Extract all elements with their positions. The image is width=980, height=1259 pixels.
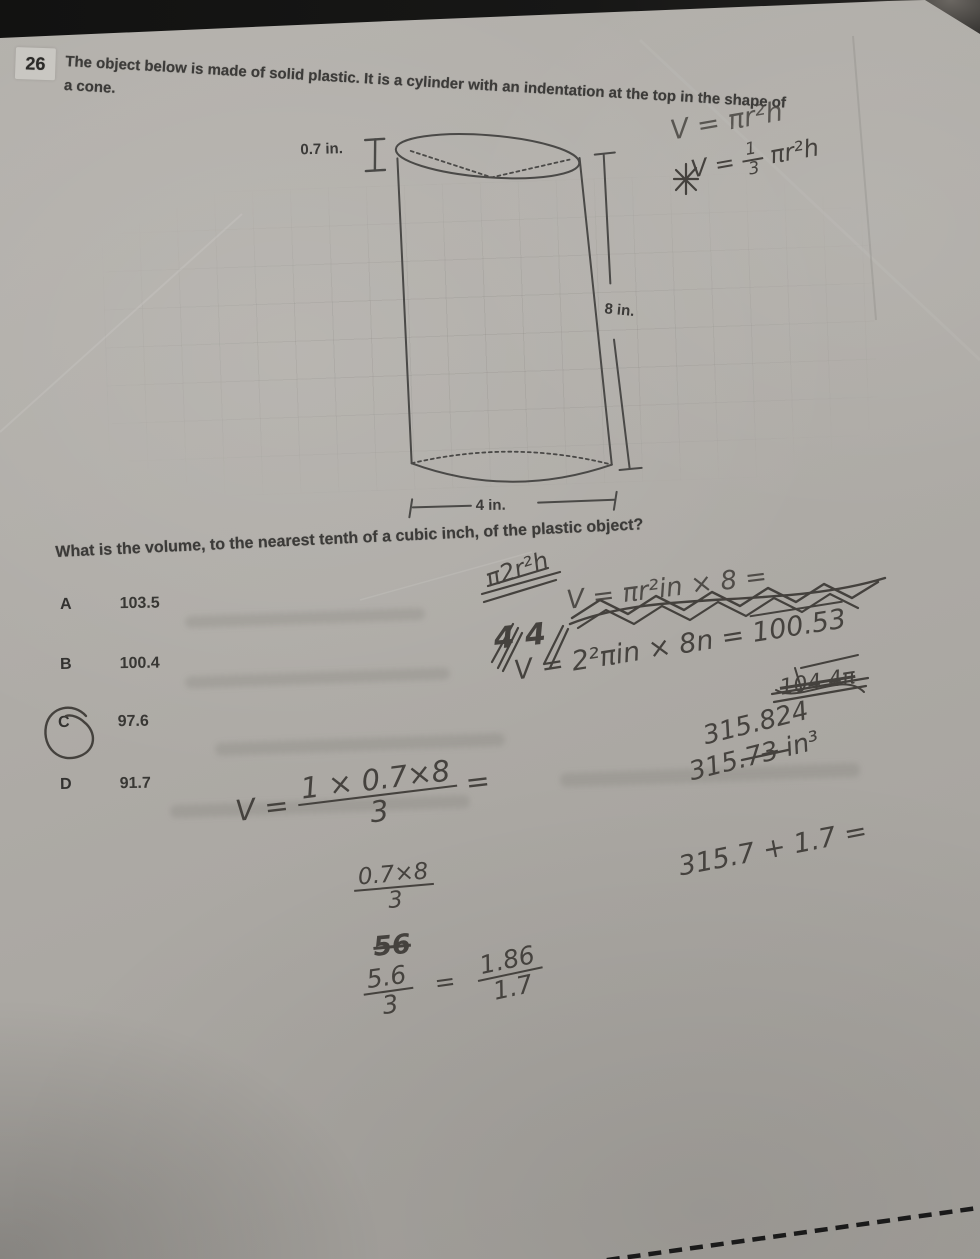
height-label: 8 in.: [604, 300, 635, 320]
hw-work-frac4: 1.861.7: [472, 941, 548, 1008]
indent-depth-label: 0.7 in.: [300, 140, 343, 158]
choice-b-value: 100.4: [120, 655, 160, 674]
height-dim-cap-bottom: [620, 467, 642, 471]
choice-b-letter: B: [60, 656, 72, 674]
cylinder-bottom-front: [411, 456, 612, 486]
diameter-label: 4 in.: [476, 497, 506, 514]
choice-c: C 97.6: [58, 713, 149, 732]
choice-d-letter: D: [60, 776, 72, 794]
hw-cone-pre: V =: [689, 148, 737, 183]
cylinder-bottom-back-dashed: [412, 447, 612, 471]
cylinder-left-side: [385, 158, 425, 463]
choice-a-value: 103.5: [120, 595, 160, 614]
dia-dim-tick-left: [409, 499, 412, 517]
dia-dim-tick-right: [614, 492, 617, 510]
dia-dim-seg2: [538, 497, 614, 506]
hw-work-frac2: 0.7×83: [352, 859, 437, 916]
choice-c-value: 97.6: [118, 713, 149, 731]
indent-ibeam-stem: [374, 139, 376, 170]
hw-work-crossed: 56: [372, 929, 412, 963]
choice-d: D 91.7: [60, 775, 151, 794]
hw-work-frac3: 5.63: [360, 961, 417, 1022]
hw-cone-fraction: 13: [739, 139, 766, 180]
cylinder-diagram: 8 in. 4 in. 0.7 in.: [273, 104, 712, 548]
indent-ibeam-cap-bottom: [366, 169, 385, 172]
choice-b: B 100.4: [60, 655, 160, 674]
height-dim-seg1: [598, 155, 615, 283]
question-number-box: 26: [15, 47, 56, 80]
question-number: 26: [25, 53, 46, 75]
choice-c-letter: C: [58, 714, 70, 732]
dia-dim-seg1: [413, 503, 471, 509]
height-dim-cap-top: [595, 152, 615, 156]
choice-a-letter: A: [60, 596, 72, 614]
height-dim-seg2: [609, 340, 635, 469]
choice-d-value: 91.7: [120, 775, 151, 793]
hw-cone-post: πr²h: [768, 133, 821, 169]
choice-a: A 103.5: [60, 595, 160, 614]
